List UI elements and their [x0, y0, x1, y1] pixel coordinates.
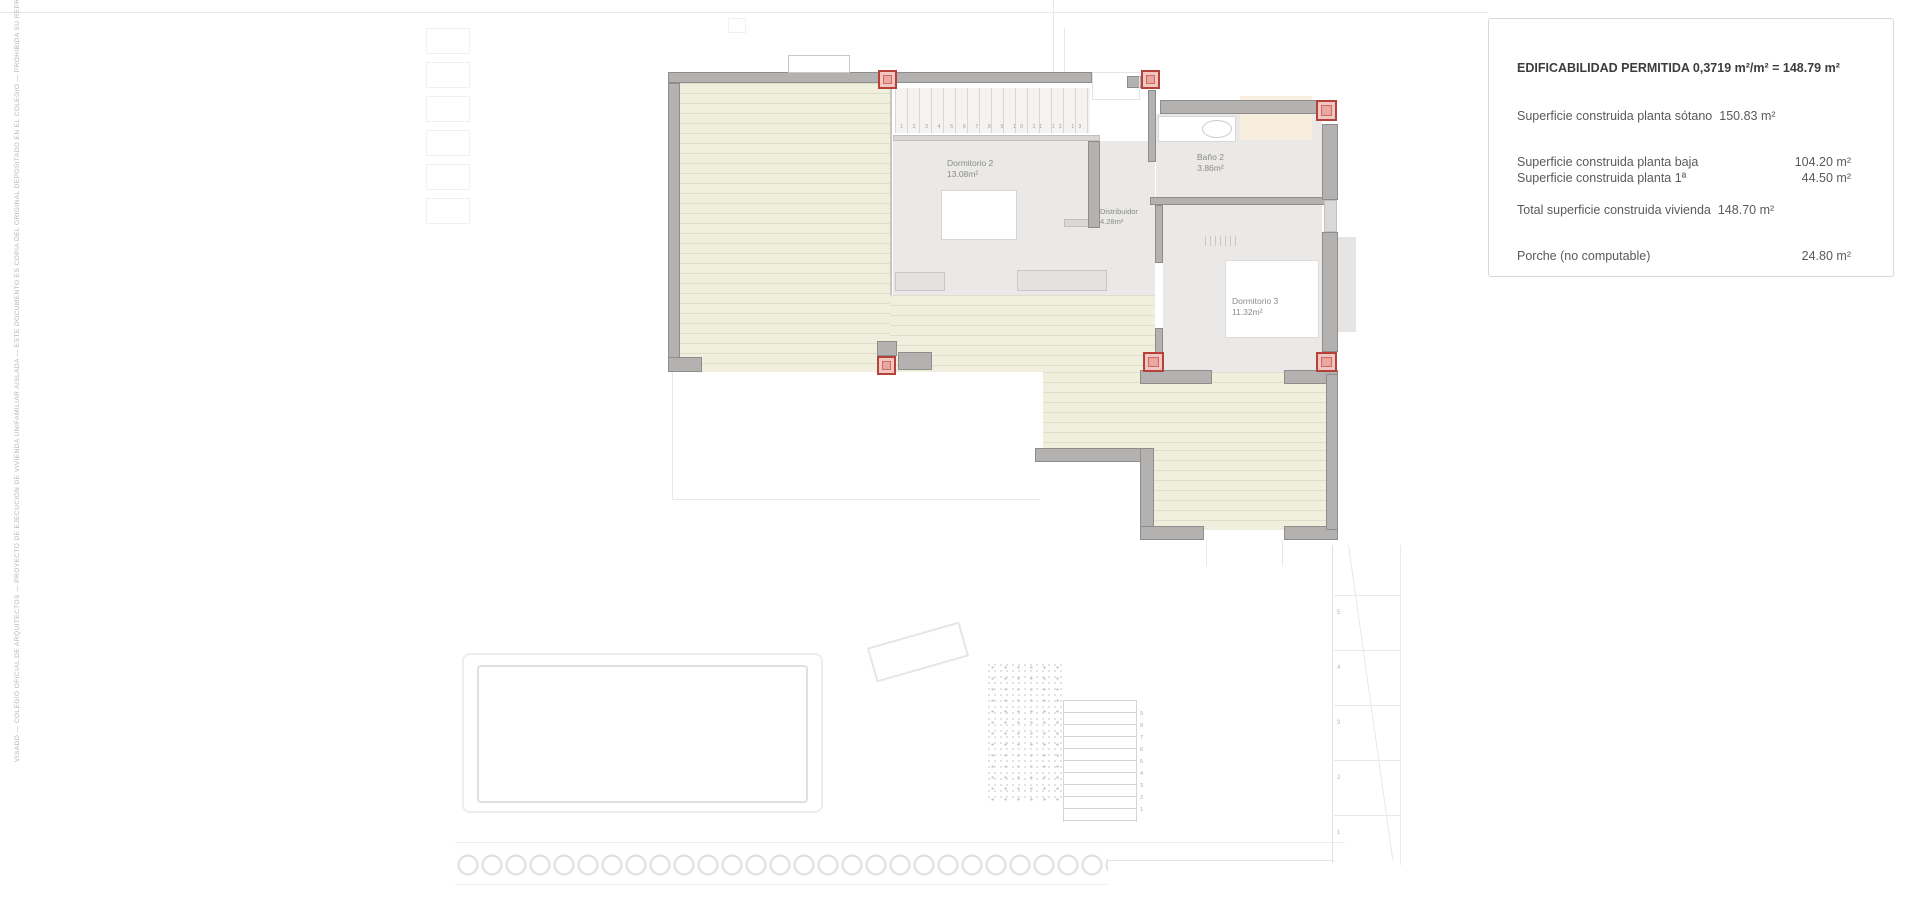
row-value: 104.20 m²: [1795, 155, 1851, 169]
legend-ghost-box: [426, 164, 470, 190]
roof-ghost-box: [728, 18, 746, 33]
wall-dorm3-left-a: [1155, 205, 1163, 263]
room-label-dormitorio3: Dormitorio 3 11.32m²: [1232, 296, 1278, 319]
row-label: Superficie construida planta 1ª: [1517, 171, 1686, 185]
room-name: Dormitorio 3: [1232, 296, 1278, 307]
site-line: [455, 884, 1108, 885]
legend-ghost-box: [426, 96, 470, 122]
hedge-row: [455, 846, 1108, 884]
contour-numbers: 5 4 3 2 1: [1337, 586, 1340, 861]
room-label-dormitorio2: Dormitorio 2 13.08m²: [947, 158, 993, 181]
wall-right-mid: [1322, 232, 1338, 352]
anchor-marker: [878, 70, 897, 89]
room-name: Baño 2: [1197, 152, 1224, 163]
legend-ghost-box: [426, 28, 470, 54]
wall-dorm2-right: [1088, 141, 1100, 228]
anchor-marker: [877, 356, 896, 375]
step-exit-line: [1282, 540, 1283, 566]
door-leaf: [1064, 219, 1090, 227]
contour-line: [1332, 545, 1333, 863]
wall-right-upper: [1322, 124, 1338, 200]
legend-ghost-box: [426, 130, 470, 156]
panel-title: EDIFICABILIDAD PERMITIDA 0,3719 m²/m² = …: [1517, 61, 1863, 75]
closet-left: [895, 272, 945, 291]
contour-tick: [1334, 595, 1400, 596]
wall-terrace-left: [668, 83, 680, 372]
row-value: 24.80 m²: [1802, 249, 1851, 263]
site-line: [1108, 860, 1334, 861]
legend-ghost-box: [426, 198, 470, 224]
contour-diagonal: [1348, 545, 1393, 860]
pillar-mid: [877, 341, 897, 356]
room-label-distribuidor: Distribuidor 4.28m²: [1100, 207, 1138, 227]
closet-right: [1017, 270, 1107, 291]
wall-terrace-corner: [668, 357, 702, 372]
wall-mid-stub: [898, 352, 932, 370]
porch-terrace-lower: [1152, 450, 1326, 530]
room-name: Distribuidor: [1100, 207, 1138, 217]
room-label-bano2: Baño 2 3.86m²: [1197, 152, 1224, 175]
wall-dorm2-top: [893, 135, 1100, 141]
panel-row-baja: Superficie construida planta baja 104.20…: [1517, 155, 1851, 169]
wardrobe-ticks: [1205, 236, 1239, 246]
step-exit-line: [1206, 540, 1207, 566]
porch-wall-right: [1326, 374, 1338, 530]
window-right: [1324, 200, 1337, 232]
row-label: Porche (no computable): [1517, 249, 1650, 263]
sheet-top-line: [0, 12, 1488, 13]
landing-outline: [1092, 72, 1140, 100]
porch-wall-L-horizontal: [1035, 448, 1152, 462]
sink: [1202, 120, 1232, 138]
panel-row-porche: Porche (no computable) 24.80 m²: [1517, 249, 1851, 263]
garden-steps: [1063, 700, 1137, 822]
buildability-info-panel: EDIFICABILIDAD PERMITIDA 0,3719 m²/m² = …: [1488, 18, 1894, 277]
margin-disclaimer-text: VISADO — COLEGIO OFICIAL DE ARQUITECTOS …: [14, 62, 21, 762]
room-area: 3.86m²: [1197, 163, 1224, 174]
wall-right-outer-band: [1338, 237, 1356, 332]
wall-bano2-left: [1148, 90, 1156, 162]
room-area: 4.28m²: [1100, 217, 1138, 227]
chimney: [788, 55, 850, 73]
row-value: 44.50 m²: [1802, 171, 1851, 185]
row-value: 148.70 m²: [1718, 203, 1774, 217]
row-label: Superficie construida planta baja: [1517, 155, 1698, 169]
legend-ghost-box: [426, 62, 470, 88]
row-value: 150.83 m²: [1719, 109, 1775, 123]
anchor-marker: [1316, 100, 1337, 121]
staircase-step-numbers: 1 2 3 4 5 6 7 8 9 10 11 12 13 14 15 16: [900, 124, 1088, 130]
floor-plan-sheet: VISADO — COLEGIO OFICIAL DE ARQUITECTOS …: [0, 0, 1920, 920]
wall-bano2-bottom: [1150, 197, 1330, 205]
terrace-upper-left: [680, 83, 890, 372]
row-label: Superficie construida planta sótano: [1517, 109, 1712, 123]
roof-outline: [672, 372, 1040, 500]
porch-wall-bottom-a: [1140, 526, 1204, 540]
site-line: [455, 842, 1345, 843]
anchor-marker: [1141, 70, 1160, 89]
gravel-planting-patch: [986, 662, 1066, 802]
room-area: 13.08m²: [947, 169, 993, 180]
anchor-marker: [1143, 352, 1164, 372]
panel-row-planta1: Superficie construida planta 1ª 44.50 m²: [1517, 171, 1851, 185]
garden-step-numbers: 9 8 7 6 5 4 3 2 1: [1140, 708, 1143, 816]
pool-inner: [477, 665, 808, 803]
contour-line: [1400, 545, 1401, 865]
anchor-marker: [1316, 352, 1337, 372]
row-label: Total superficie construida vivienda: [1517, 203, 1711, 217]
construction-line: [1064, 28, 1065, 72]
room-area: 11.32m²: [1232, 307, 1278, 318]
contour-tick: [1334, 650, 1400, 651]
panel-row-sotano: Superficie construida planta sótano 150.…: [1517, 109, 1851, 123]
wall-house-left-line: [890, 83, 892, 295]
room-name: Dormitorio 2: [947, 158, 993, 169]
wall-top-right: [1160, 100, 1318, 114]
panel-row-total: Total superficie construida vivienda 148…: [1517, 203, 1851, 217]
bed-dormitorio2: [941, 190, 1017, 240]
construction-line: [1053, 0, 1054, 72]
contour-tick: [1334, 815, 1400, 816]
sunbed: [867, 621, 969, 682]
contour-tick: [1334, 760, 1400, 761]
porch-wall-stub-left: [1140, 370, 1212, 384]
contour-tick: [1334, 705, 1400, 706]
